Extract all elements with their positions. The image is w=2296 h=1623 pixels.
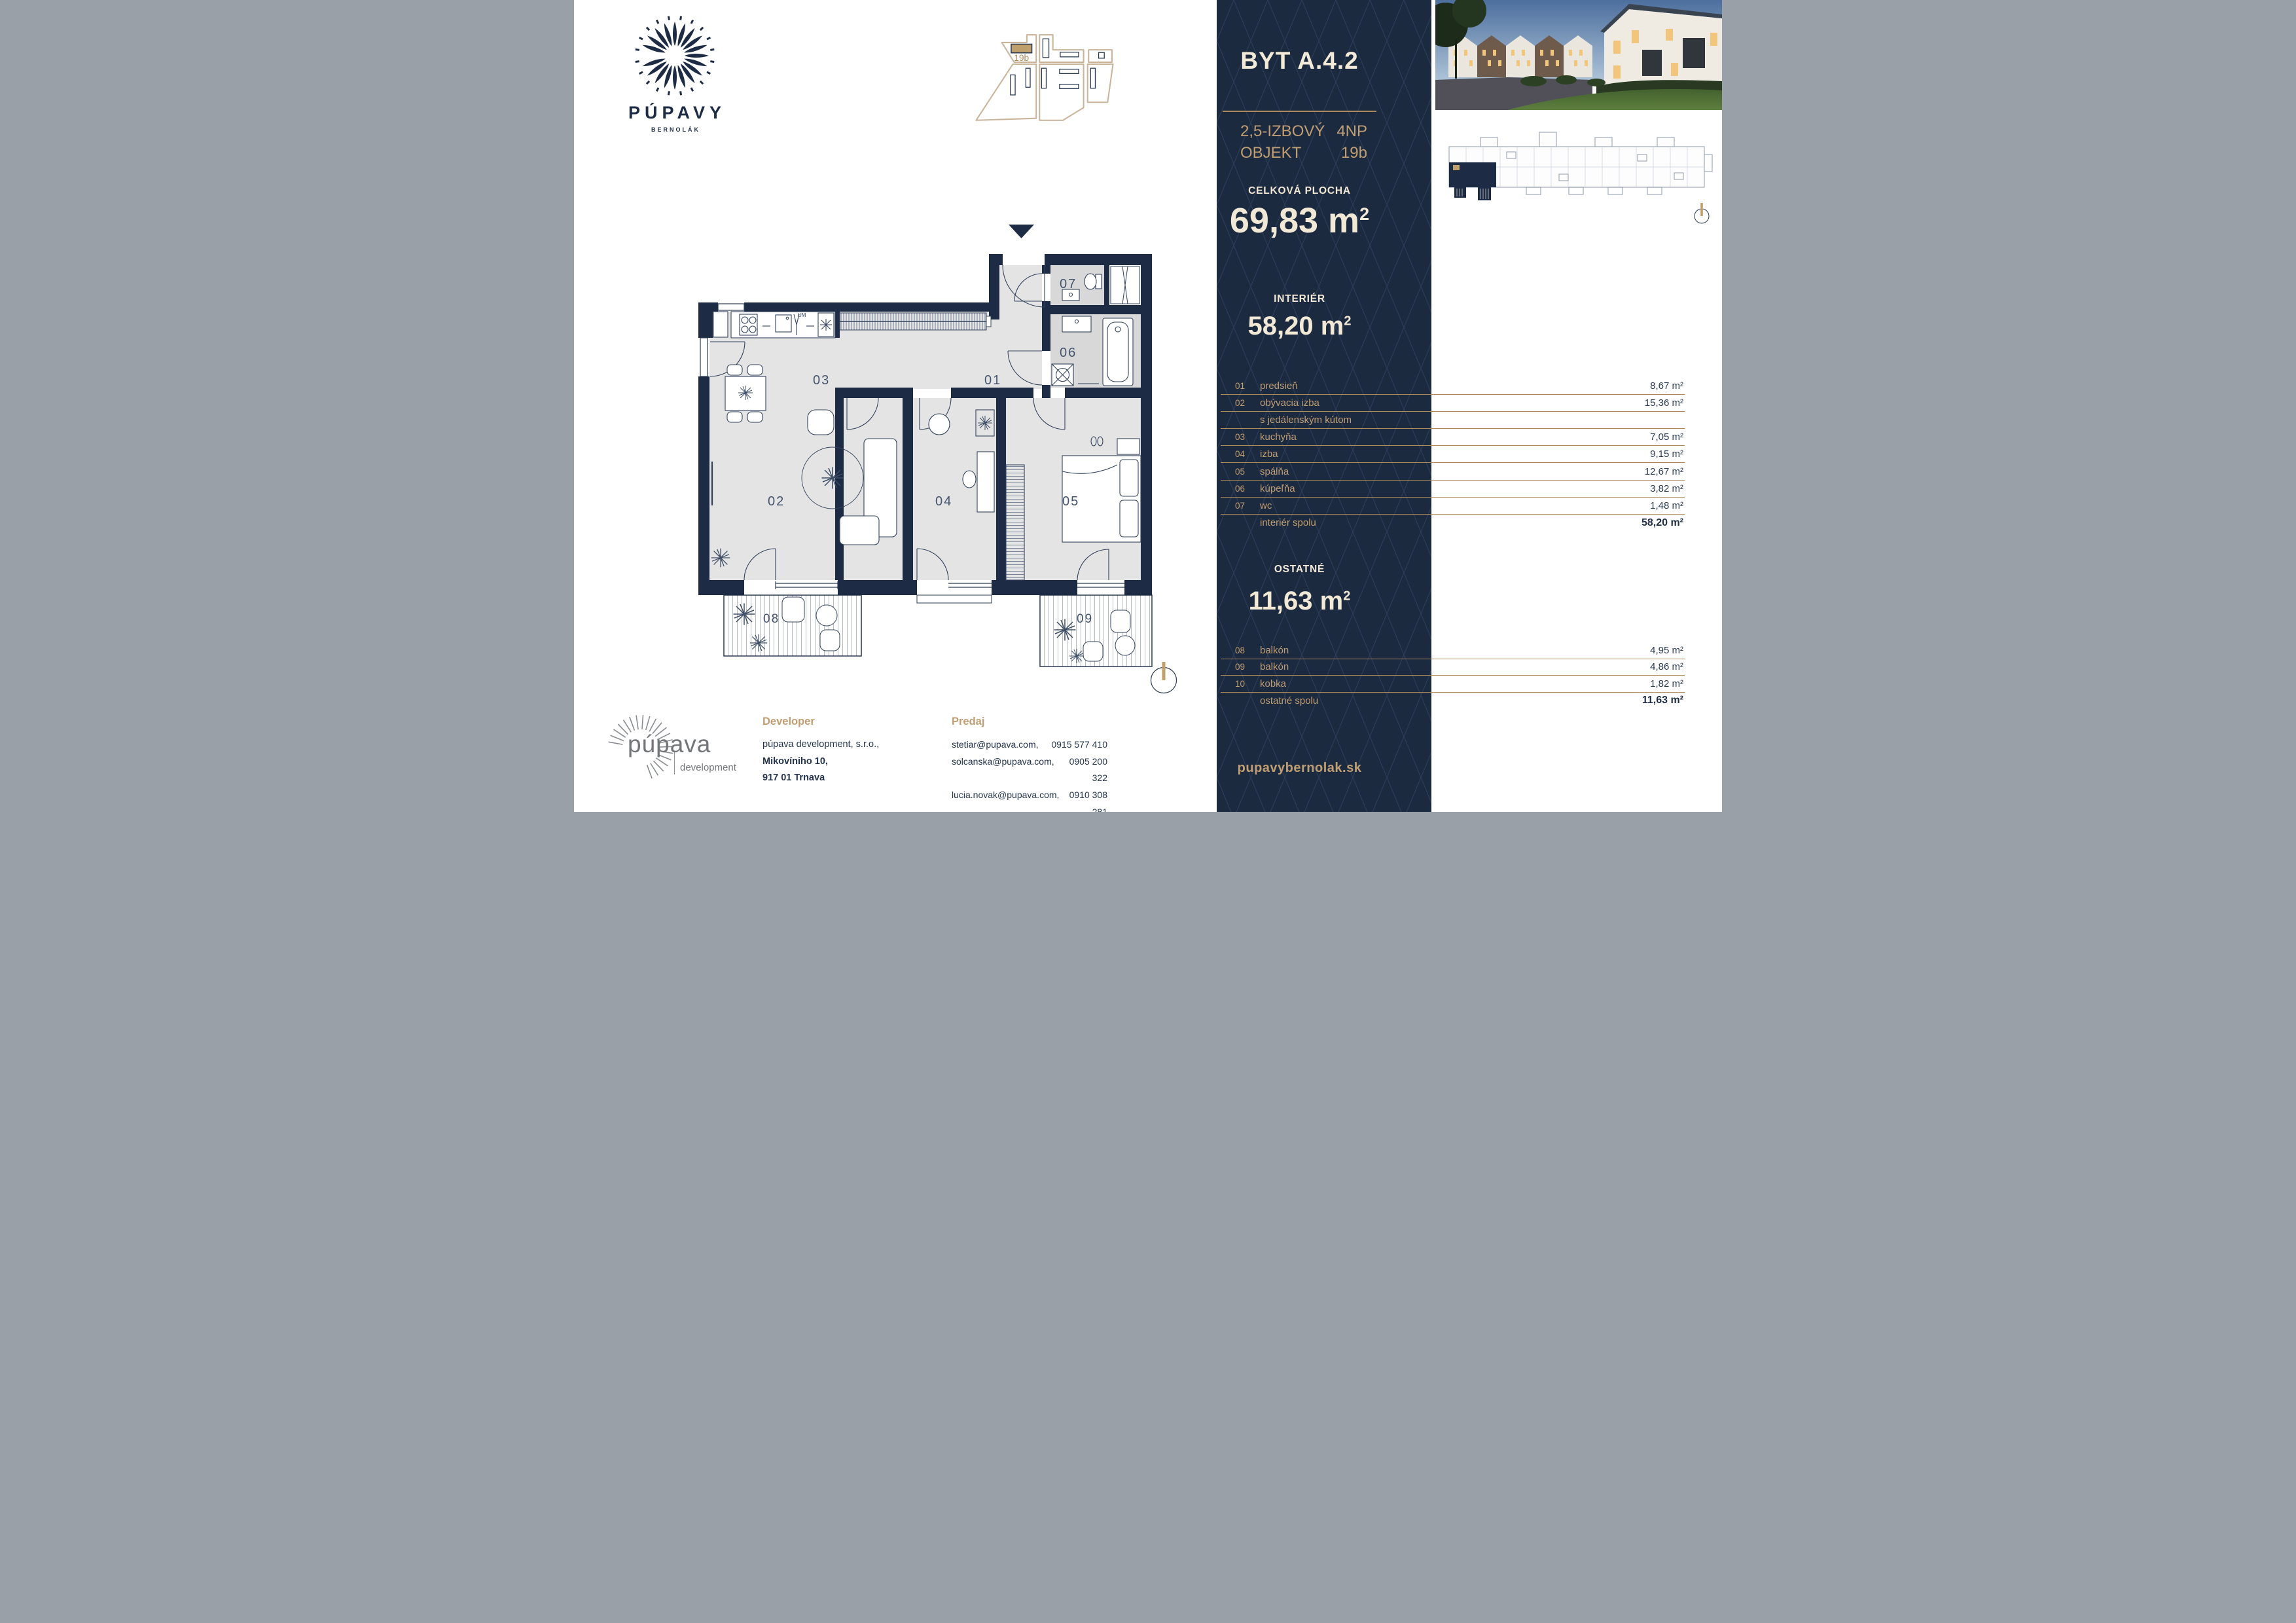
sales-contact: solcanska@pupava.com,0905 200 322 <box>952 754 1107 788</box>
room-area: 9,15 m² <box>1650 448 1685 460</box>
unit-type: 2,5-IZBOVÝOBJEKT 4NP19b <box>1223 120 1376 164</box>
room-row: interiér spolu58,20 m² <box>1221 515 1685 532</box>
room-area: 12,67 m² <box>1645 466 1685 477</box>
floor-number: 4NP <box>1336 120 1367 142</box>
room-row: ostatné spolu11,63 m² <box>1221 693 1685 710</box>
total-area-label: CELKOVÁ PLOCHA <box>1223 185 1376 197</box>
room-label-08: 08 <box>763 612 780 626</box>
room-area: 7,05 m² <box>1650 431 1685 443</box>
room-name: izba <box>1260 448 1650 460</box>
developer-company: púpava development, s.r.o., <box>762 737 926 754</box>
interior-value: 58,20 m2 <box>1223 313 1376 339</box>
sales-contact: lucia.novak@pupava.com,0910 308 281 <box>952 787 1107 812</box>
room-label-07: 07 <box>1060 277 1077 291</box>
interior-room-table: 01predsieň8,67 m²02obývacia izba15,36 m²… <box>1221 378 1685 532</box>
room-label-05: 05 <box>1062 494 1079 509</box>
room-row: 04izba9,15 m² <box>1221 446 1685 463</box>
room-number: 05 <box>1235 467 1260 477</box>
unit-title: BYT A.4.2 <box>1223 47 1376 75</box>
developer-street: Mikovíniho 10, <box>762 754 926 771</box>
room-label-03: 03 <box>813 373 830 388</box>
site-plan: 19b <box>963 21 1130 136</box>
room-number: 02 <box>1235 398 1260 408</box>
room-row: 10kobka1,82 m² <box>1221 676 1685 693</box>
room-row: s jedálenským kútom <box>1221 412 1685 429</box>
room-name: s jedálenským kútom <box>1260 414 1683 426</box>
brand-logo: PÚPAVY BERNOLÁK <box>617 14 732 133</box>
room-label-09: 09 <box>1077 612 1093 626</box>
contact-email: stetiar@pupava.com, <box>952 737 1039 754</box>
other-value: 11,63 m2 <box>1223 588 1376 614</box>
other-label: OSTATNÉ <box>1223 564 1376 575</box>
site-highlight-label: 19b <box>1014 53 1029 63</box>
kitchen-counter <box>713 312 835 338</box>
hall-wardrobe <box>840 313 991 330</box>
overview-compass-icon <box>1695 203 1709 223</box>
room-area: 58,20 m² <box>1641 517 1685 529</box>
kitchen-dishwasher-label: UM <box>798 312 806 318</box>
room-name: balkón <box>1260 645 1650 656</box>
room-number: 04 <box>1235 449 1260 459</box>
total-area-value: 69,83 m2 <box>1223 203 1376 238</box>
room-row: 02obývacia izba15,36 m² <box>1221 395 1685 412</box>
sales-info: Predaj stetiar@pupava.com,0915 577 410 s… <box>952 714 1107 812</box>
room-number: 10 <box>1235 679 1260 689</box>
developer-heading: Developer <box>762 714 926 731</box>
brand-name: PÚPAVY <box>617 103 732 123</box>
sales-contact: stetiar@pupava.com,0915 577 410 <box>952 737 1107 754</box>
divider <box>1223 111 1376 112</box>
room-number: 09 <box>1235 662 1260 672</box>
dandelion-icon <box>617 14 732 100</box>
room-number: 08 <box>1235 646 1260 655</box>
room-row: 05spálňa12,67 m² <box>1221 463 1685 480</box>
interior-label: INTERIÉR <box>1223 293 1376 305</box>
room-area: 8,67 m² <box>1650 380 1685 392</box>
room-number: 07 <box>1235 501 1260 511</box>
apartment-sheet: PÚPAVY BERNOLÁK 19b <box>574 0 1722 812</box>
compass-icon <box>1147 660 1181 698</box>
contact-phone: 0905 200 322 <box>1054 754 1107 788</box>
building-number: 19b <box>1336 142 1367 164</box>
room-label-04: 04 <box>935 494 952 509</box>
room-name: interiér spolu <box>1260 517 1641 528</box>
room-row: 07wc1,48 m² <box>1221 498 1685 515</box>
room-name: predsieň <box>1260 380 1650 392</box>
developer-logo-subtext: development <box>674 752 736 775</box>
room-name: spálňa <box>1260 466 1645 477</box>
room-row: 06kúpeľňa3,82 m² <box>1221 481 1685 498</box>
room-name: wc <box>1260 500 1650 511</box>
room-area: 4,95 m² <box>1650 645 1685 656</box>
floor-plan: UM <box>698 223 1163 668</box>
shaft <box>1111 266 1139 304</box>
north-arrow-icon <box>1009 225 1034 238</box>
room-name: balkón <box>1260 661 1650 672</box>
room-name: kuchyňa <box>1260 431 1650 443</box>
contact-email: lucia.novak@pupava.com, <box>952 787 1059 812</box>
room-row: 09balkón4,86 m² <box>1221 659 1685 676</box>
room-area: 3,82 m² <box>1650 483 1685 494</box>
site-highlight-building <box>1011 44 1032 52</box>
room-area: 15,36 m² <box>1645 397 1685 409</box>
room-number: 03 <box>1235 432 1260 442</box>
room-label-06: 06 <box>1060 346 1077 360</box>
floor-overview-plan <box>1441 128 1719 233</box>
room-name: kobka <box>1260 678 1650 689</box>
room-row: 08balkón4,95 m² <box>1221 642 1685 659</box>
brand-subtitle: BERNOLÁK <box>617 126 732 133</box>
room-number: 01 <box>1235 381 1260 391</box>
contact-email: solcanska@pupava.com, <box>952 754 1054 788</box>
room-area: 4,86 m² <box>1650 661 1685 672</box>
room-area: 1,48 m² <box>1650 500 1685 511</box>
room-name: ostatné spolu <box>1260 695 1642 706</box>
room-name: obývacia izba <box>1260 397 1645 409</box>
room-number: 06 <box>1235 484 1260 494</box>
website-link: pupavybernolak.sk <box>1223 761 1376 776</box>
sales-heading: Predaj <box>952 714 1107 731</box>
room-row: 03kuchyňa7,05 m² <box>1221 429 1685 446</box>
contact-phone: 0915 577 410 <box>1051 737 1107 754</box>
room-name: kúpeľňa <box>1260 483 1650 494</box>
room-area: 1,82 m² <box>1650 678 1685 689</box>
room-label-01: 01 <box>984 373 1001 388</box>
other-room-table: 08balkón4,95 m²09balkón4,86 m²10kobka1,8… <box>1221 642 1685 709</box>
contact-phone: 0910 308 281 <box>1059 787 1107 812</box>
developer-info: Developer púpava development, s.r.o., Mi… <box>762 714 926 787</box>
developer-logo: púpava development <box>594 711 747 799</box>
rooms-type: 2,5-IZBOVÝ <box>1240 120 1325 142</box>
room-label-02: 02 <box>768 494 785 509</box>
developer-city: 917 01 Trnava <box>762 770 926 787</box>
overview-highlight-unit <box>1449 162 1496 200</box>
object-label: OBJEKT <box>1240 142 1325 164</box>
room-area: 11,63 m² <box>1642 695 1685 706</box>
room-row: 01predsieň8,67 m² <box>1221 378 1685 395</box>
building-photo <box>1435 0 1722 110</box>
